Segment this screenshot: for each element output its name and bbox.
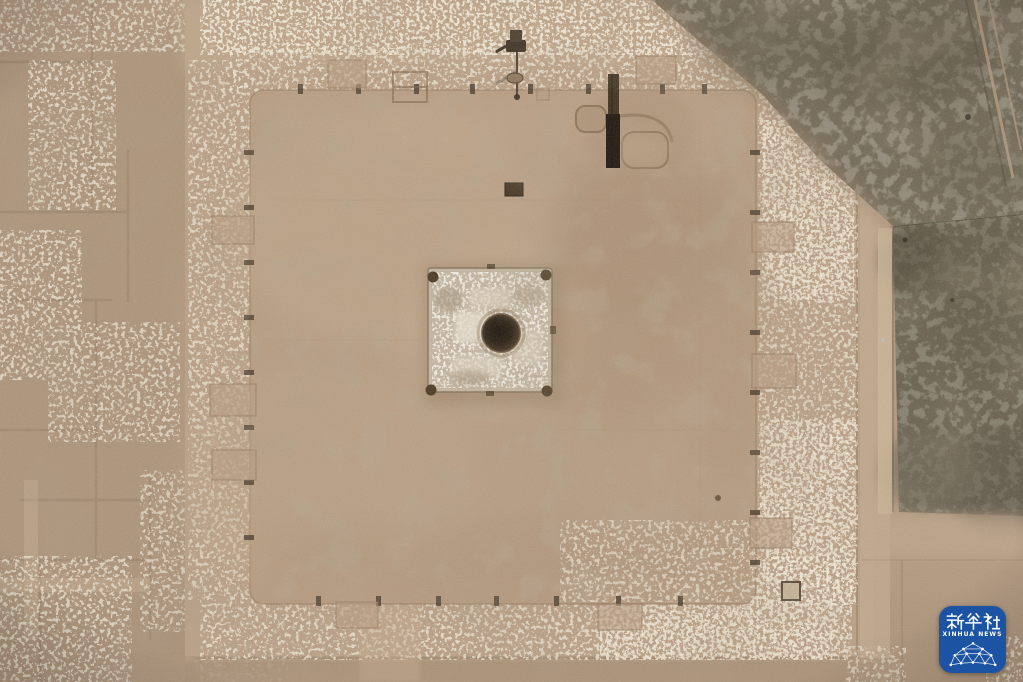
xinhua-globe-icon: [949, 641, 997, 668]
screenshot-root: 新华社 XINHUA NEWS: [0, 0, 1023, 682]
aerial-excavation-photo: [0, 0, 1023, 682]
glyph-xin: [947, 614, 963, 629]
xinhua-cn-label: 新华社: [972, 639, 973, 640]
glyph-hua: [965, 614, 980, 629]
photo-grain-overlay: [0, 0, 1023, 682]
xinhua-news-badge: 新华社 XINHUA NEWS: [939, 606, 1006, 673]
xinhua-en-label: XINHUA NEWS: [943, 632, 1003, 638]
vignette: [0, 0, 1023, 682]
glyph-she: [984, 614, 1000, 629]
xinhua-cn-glyphs: [946, 612, 1000, 631]
